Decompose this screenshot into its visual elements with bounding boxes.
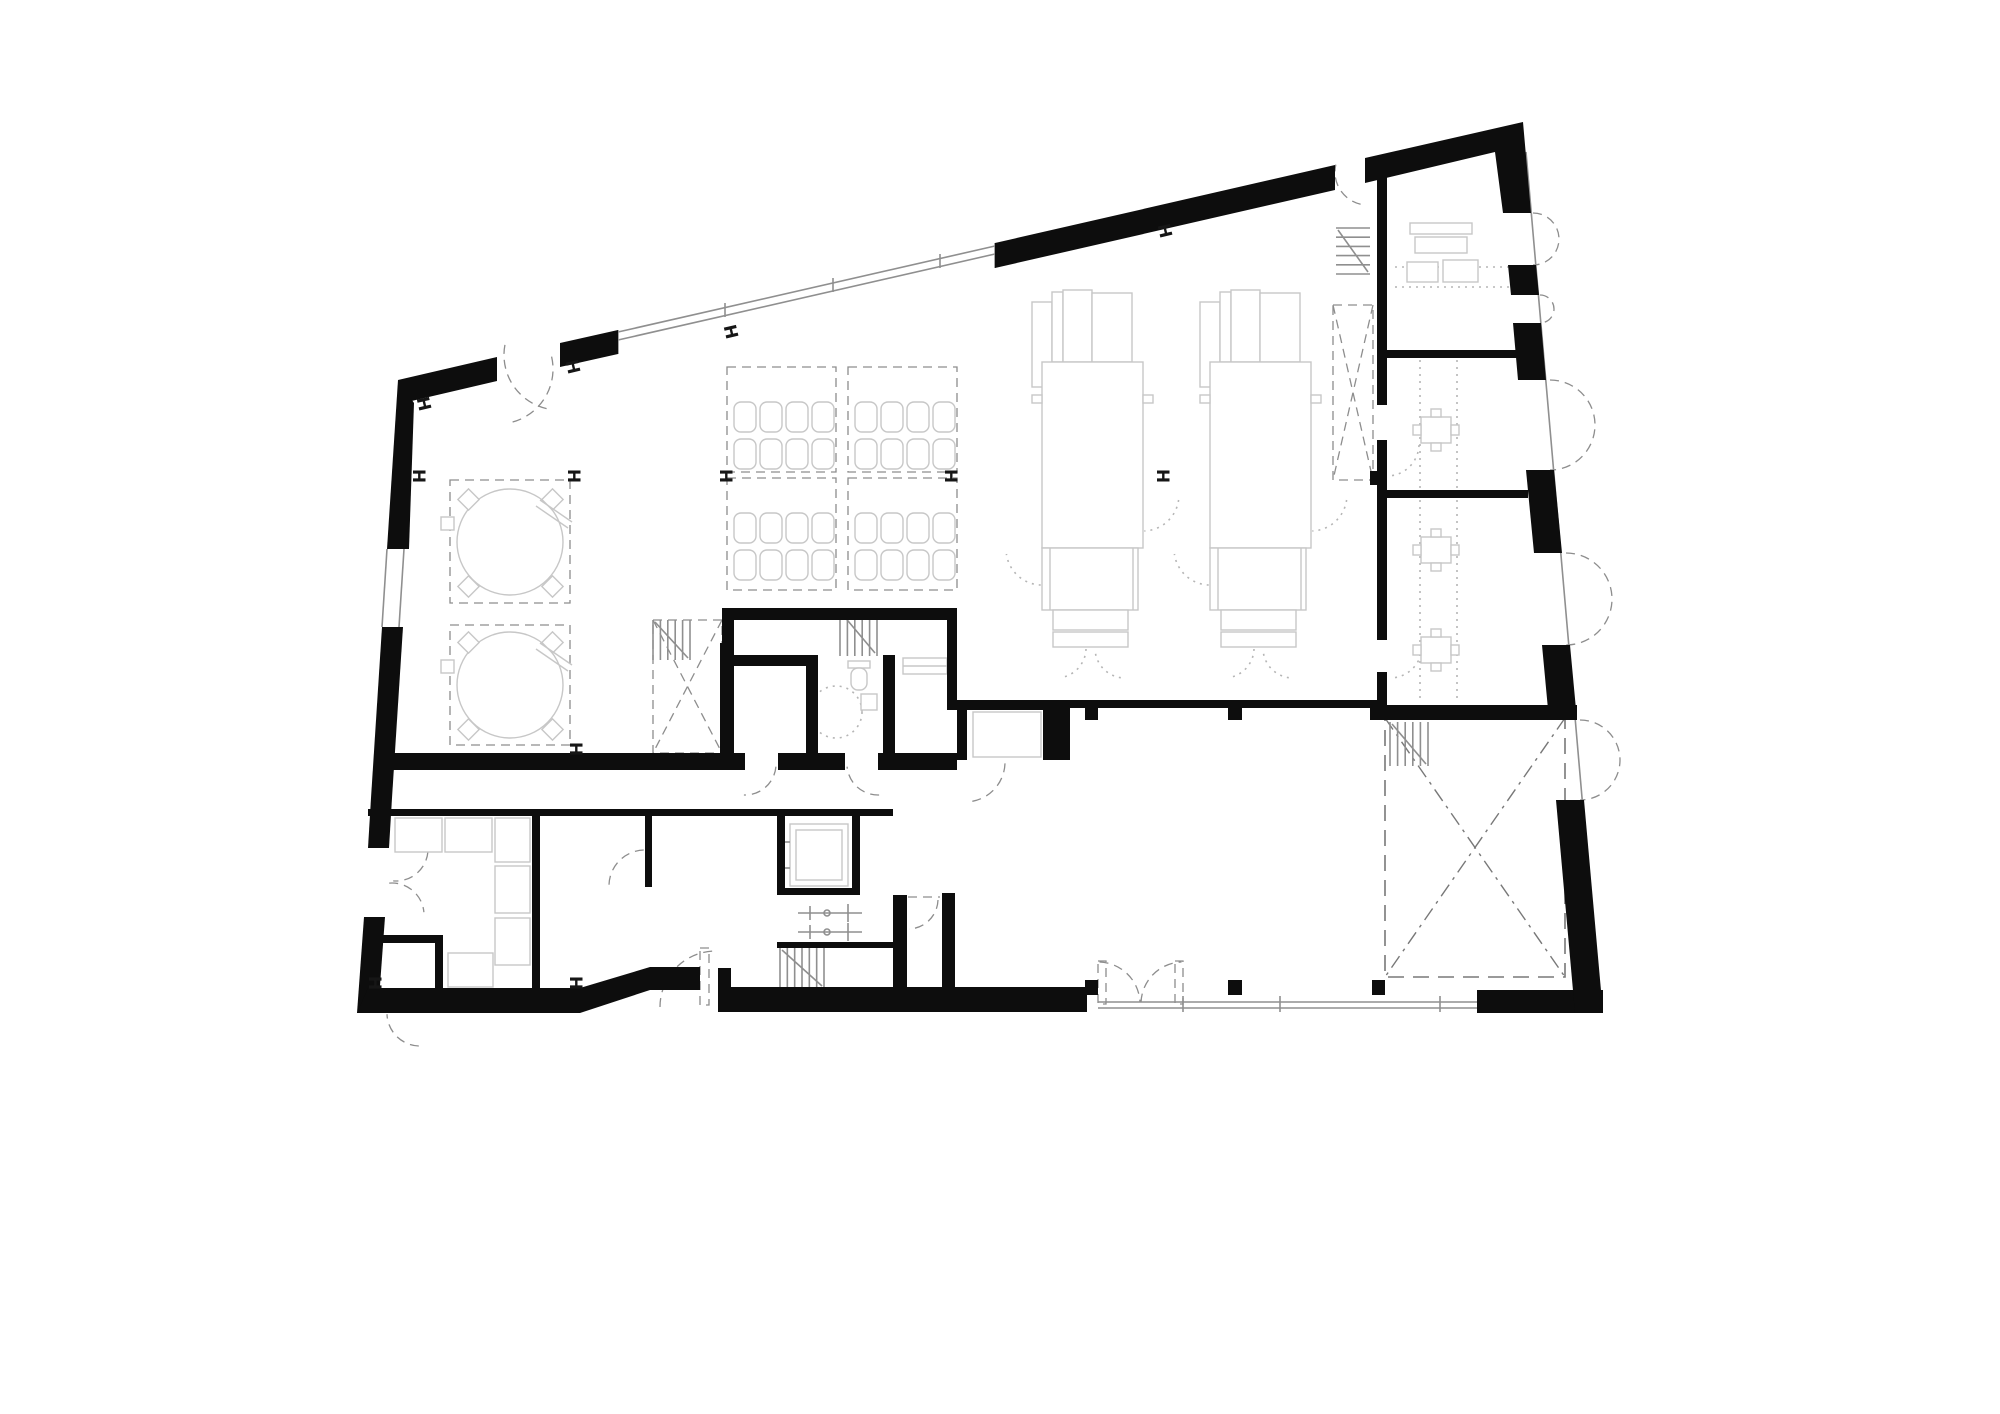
steel-column: H (364, 976, 384, 990)
elevator-car-inner (796, 830, 842, 880)
interior-wall (1070, 700, 1383, 708)
interior-wall (1043, 710, 1070, 760)
office-wall (1387, 350, 1517, 358)
kitchen-unit (973, 712, 1041, 757)
hearse-1-rear-swing (1060, 649, 1086, 678)
chair-row (734, 402, 834, 432)
hearse-1-rear-swing (1095, 649, 1121, 678)
layer-dashed-outlines (387, 165, 1620, 1046)
interior-wall (645, 815, 652, 887)
core-wall (734, 655, 818, 666)
column (1085, 708, 1098, 720)
window-band (399, 549, 404, 627)
sofa (445, 818, 492, 852)
door-swing (609, 850, 644, 885)
column (1228, 708, 1242, 720)
interior-wall (368, 809, 893, 816)
office-desk (1415, 237, 1467, 253)
facade-door-swing (1533, 213, 1559, 265)
hearse-1-rear (1052, 292, 1063, 362)
facade-door-swing (1566, 553, 1612, 645)
hearse-1-body (1042, 362, 1143, 548)
column (1228, 980, 1242, 995)
hearse-1-front (1053, 610, 1128, 630)
steel-column: H (715, 469, 735, 483)
core-wall (947, 608, 957, 710)
chair-row (855, 550, 955, 580)
facade-pier (1513, 323, 1546, 380)
door-swing (847, 767, 879, 795)
chair-row (855, 513, 955, 543)
exterior-wall (718, 987, 1087, 1012)
door-swing (504, 343, 547, 409)
core-wall (722, 608, 734, 753)
layer-furniture (395, 223, 1478, 987)
steel-column: H (565, 976, 585, 990)
exterior-wall (1556, 800, 1603, 1013)
core-wall (722, 608, 957, 620)
facade-door-swing (1540, 295, 1554, 323)
toilet-tank (848, 661, 870, 668)
sofa (395, 818, 442, 852)
door-swing (909, 900, 938, 929)
chair-row (855, 402, 955, 432)
hearse-1-hood (1042, 548, 1138, 610)
stair-arrow (1338, 230, 1368, 272)
door-swing (744, 767, 776, 795)
steel-column: H (1153, 222, 1176, 240)
exterior-wall (387, 380, 414, 549)
toilet-bowl (851, 668, 867, 690)
chair (441, 660, 454, 673)
door-swing (972, 763, 1005, 801)
office-desk (1407, 262, 1438, 282)
door-jamb (718, 968, 731, 988)
door-swing (389, 883, 424, 912)
facade-door-swing (1550, 380, 1595, 470)
steel-column: H (561, 358, 584, 376)
chair-row (855, 439, 955, 469)
washbasin (861, 694, 877, 710)
office-wall (1377, 440, 1387, 640)
facade-pier (1526, 470, 1562, 553)
office-wall (1377, 672, 1387, 708)
hearse-2-mirror (1200, 395, 1210, 403)
office-wall (1377, 160, 1387, 405)
hearse-2-hood (1210, 548, 1306, 610)
office-door-swing (1390, 445, 1419, 476)
hearse-2-door-swing (1312, 500, 1346, 531)
hearse-1-rear (1092, 293, 1132, 362)
office-wall (1382, 705, 1577, 720)
interior-wall (957, 700, 1070, 710)
exterior-wall (357, 988, 580, 1013)
facade-door-swing (1580, 720, 1620, 800)
hearse-1-door-swing (1006, 554, 1040, 585)
door-swing (1335, 165, 1361, 205)
chair-row (734, 513, 834, 543)
interior-wall (372, 935, 443, 943)
steel-column: H (565, 742, 585, 756)
exterior-door-swing (387, 1014, 419, 1046)
column (1372, 980, 1385, 995)
hearse-2-rear (1260, 293, 1300, 362)
steel-column: H (408, 469, 428, 483)
exterior-wall (580, 967, 650, 1013)
door-leaf (1175, 961, 1183, 1004)
column (1370, 471, 1383, 485)
exterior-wall (371, 627, 403, 798)
exterior-wall (995, 165, 1335, 268)
window-band (618, 246, 995, 332)
elevator-wall (777, 888, 860, 895)
door-leaf (1098, 961, 1106, 1004)
sofa (495, 818, 530, 862)
hearse-1-mirror (1032, 395, 1042, 403)
facade-pier (1508, 265, 1539, 295)
layer-dotted-marks (810, 267, 1514, 751)
office-table (1413, 629, 1459, 671)
column (1085, 980, 1098, 995)
chair-row (734, 439, 834, 469)
chair-row (734, 550, 834, 580)
core-wall (806, 666, 818, 753)
window-band (618, 254, 995, 340)
elevator-wall (852, 815, 860, 895)
exterior-wall (650, 967, 700, 990)
elevator-wall (777, 815, 785, 895)
steel-column: H (563, 469, 583, 483)
chair (441, 517, 454, 530)
hearse-2-rear (1220, 292, 1231, 362)
steel-column: H (412, 395, 435, 413)
interior-wall (878, 753, 957, 770)
exterior-wall (398, 357, 497, 403)
exterior-wall (1365, 122, 1531, 213)
hearse-2-door-swing (1174, 554, 1208, 585)
sofa (495, 918, 530, 965)
sofa (495, 866, 530, 913)
office-shelf (1410, 223, 1472, 234)
hearse-1-mirror (1143, 395, 1153, 403)
window-band (382, 549, 387, 627)
core-wall (883, 655, 895, 753)
interior-wall (777, 942, 893, 948)
steel-column: H (719, 323, 742, 341)
hearse-2-bumper (1221, 632, 1296, 647)
interior-wall (532, 815, 540, 988)
interior-wall (435, 937, 443, 990)
hearse-2-rear-swing (1263, 649, 1289, 678)
floor-plan-figure: HHHHHHHHHHHH (0, 0, 2000, 1414)
sofa (448, 953, 493, 987)
door-swing (393, 852, 428, 881)
interior-wall (778, 753, 845, 770)
hearse-2-rear-swing (1228, 649, 1254, 678)
interior-wall (942, 893, 955, 988)
hearse-1-bumper (1053, 632, 1128, 647)
steel-column: H (1152, 469, 1172, 483)
hearse-2-body (1210, 362, 1311, 548)
hearse-2-front (1221, 610, 1296, 630)
office-wall (1387, 490, 1528, 498)
door-leaf (700, 948, 709, 1005)
hearse-2-rear (1231, 290, 1260, 362)
exterior-wall (368, 798, 392, 848)
office-desk (1443, 260, 1478, 282)
steel-column: H (940, 469, 960, 483)
hearse-1-door-swing (1144, 500, 1178, 531)
hearse-2-mirror (1311, 395, 1321, 403)
hearse-1-rear (1063, 290, 1092, 362)
interior-wall (893, 895, 907, 988)
floor-plan-svg: HHHHHHHHHHHH (0, 0, 2000, 1414)
